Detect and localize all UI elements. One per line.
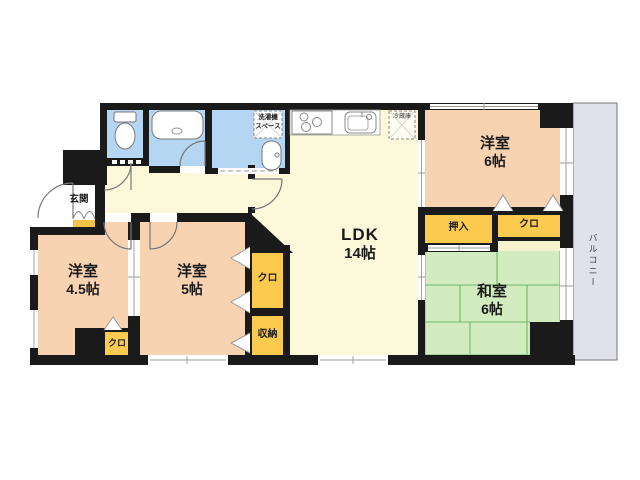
genkan-scallops xyxy=(73,212,95,220)
storage-closet xyxy=(252,316,283,355)
oshiire-closet xyxy=(425,215,492,243)
laundry-space-box xyxy=(254,111,282,138)
window-right-2 xyxy=(560,248,573,320)
floorplan-graphic xyxy=(0,0,640,480)
toilet-icon xyxy=(114,112,136,149)
bathtub-icon xyxy=(152,111,203,139)
western-room-45-notch xyxy=(105,222,128,235)
floorplan-canvas: LDK 14帖 洋室 6帖 和室 6帖 洋室 5帖 洋室 4.5帖 押入 クロ … xyxy=(0,0,640,480)
western-room-5 xyxy=(140,222,245,355)
window-right-1 xyxy=(560,128,573,195)
western-room-6 xyxy=(425,110,560,207)
stove-icon xyxy=(292,111,332,134)
door-opening-5 xyxy=(150,213,177,222)
balcony-area xyxy=(573,103,617,360)
washbasin-icon xyxy=(262,141,281,170)
closet-45 xyxy=(104,332,130,355)
door-opening-bath xyxy=(180,166,205,173)
entrance-door-arc xyxy=(38,183,73,218)
pale-strip xyxy=(498,241,560,251)
closet-5 xyxy=(252,252,283,308)
sink-icon xyxy=(345,112,376,133)
closet-6 xyxy=(498,215,560,237)
door-opening-45 xyxy=(105,213,131,222)
genkan-step xyxy=(73,220,95,227)
fridge-space-box xyxy=(389,111,415,139)
